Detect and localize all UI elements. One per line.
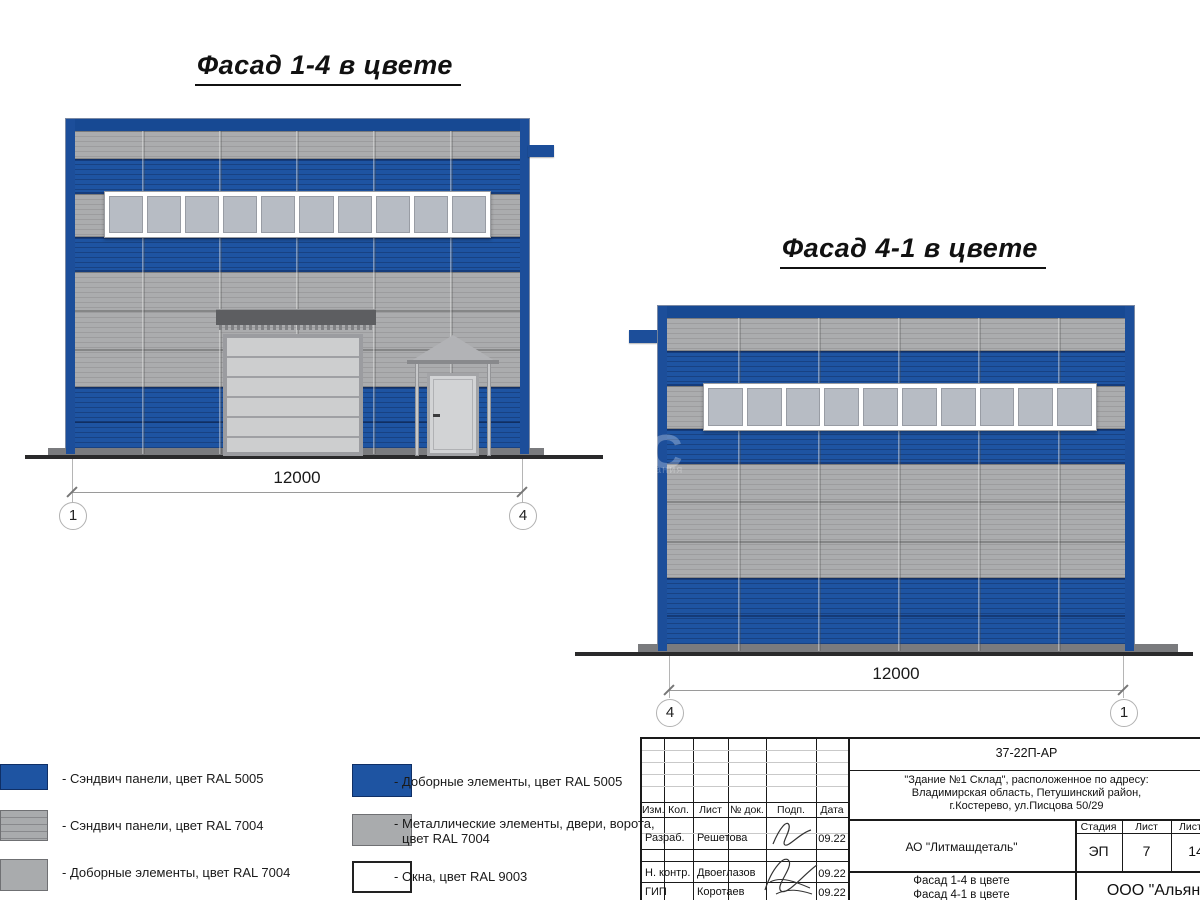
window-pane xyxy=(980,388,1015,426)
legend-label: - Окна, цвет RAL 9003 xyxy=(394,869,527,884)
canopy-post xyxy=(415,363,419,456)
sheet-value: 7 xyxy=(1122,843,1171,859)
facade-1-4-title: Фасад 1-4 в цвете xyxy=(195,50,461,86)
window-band xyxy=(104,191,491,238)
signer-name: Коротаев xyxy=(697,886,745,898)
legend-label: - Металлические элементы, двери, ворота, xyxy=(394,816,655,831)
panel-joint xyxy=(667,615,1125,617)
panel-joint xyxy=(219,131,222,454)
doc-number: 37-22П-АР xyxy=(848,746,1200,760)
window-pane xyxy=(902,388,937,426)
signature-date: 09.22 xyxy=(816,833,848,845)
facade-4-1-title: Фасад 4-1 в цвете xyxy=(780,233,1046,269)
facade-frame-right xyxy=(1125,306,1134,651)
window-pane xyxy=(299,196,333,233)
facade-frame-right xyxy=(520,119,529,454)
sheet-title: Фасад 1-4 в цвете xyxy=(848,875,1075,887)
panel-joint xyxy=(898,318,901,651)
window-pane xyxy=(338,196,372,233)
sheet-label: Лист xyxy=(1122,821,1171,833)
legend-swatch-gray-striped-panel xyxy=(0,810,48,841)
legend-label: - Сэндвич панели, цвет RAL 5005 xyxy=(62,771,264,786)
signer-role: Разраб. xyxy=(645,832,685,844)
panel-band-cap xyxy=(66,119,529,131)
address-line: Владимирская область, Петушинский район, xyxy=(848,787,1200,799)
window-pane xyxy=(376,196,410,233)
title-block-line xyxy=(642,817,848,818)
panel-band-blue xyxy=(658,351,1134,386)
extension-line xyxy=(1123,656,1124,698)
legend-label: - Сэндвич панели, цвет RAL 7004 xyxy=(62,818,264,833)
legend-swatch-blue-panel xyxy=(0,764,48,790)
window-pane xyxy=(747,388,782,426)
stage-label: Стадия xyxy=(1075,821,1122,833)
title-block-line xyxy=(848,871,1200,873)
sheets-value: 14 xyxy=(1171,843,1200,859)
window-pane xyxy=(863,388,898,426)
window-pane xyxy=(147,196,181,233)
panel-band-gray xyxy=(658,464,1134,578)
gate-canopy-teeth xyxy=(219,325,373,330)
window-pane xyxy=(941,388,976,426)
signature xyxy=(770,819,814,847)
stage-value: ЭП xyxy=(1075,843,1122,859)
window-pane xyxy=(1018,388,1053,426)
dimension-line xyxy=(72,492,522,493)
panel-joint xyxy=(1058,318,1061,651)
customer: АО "Литмашдеталь" xyxy=(848,840,1075,854)
company: ООО "Альянс xyxy=(1075,882,1200,900)
panel-joint xyxy=(738,318,741,651)
address-line: г.Костерево, ул.Писцова 50/29 xyxy=(848,800,1200,812)
col-header-kol: Кол. xyxy=(664,804,693,816)
panel-joint xyxy=(667,501,1125,503)
facade-4-1-drawing xyxy=(657,305,1135,652)
axis-marker: 4 xyxy=(509,502,537,530)
legend-label: - Доборные элементы, цвет RAL 5005 xyxy=(394,774,622,789)
entrance-door xyxy=(427,373,479,456)
signer-role: Н. контр. xyxy=(645,867,690,879)
legend-label: цвет RAL 7004 xyxy=(402,831,490,846)
title-block-line xyxy=(640,737,1200,739)
col-header-podp: Подп. xyxy=(766,804,816,816)
facade-frame-left xyxy=(66,119,75,454)
panel-joint xyxy=(667,541,1125,543)
window-pane xyxy=(786,388,821,426)
title-block-line xyxy=(642,750,848,751)
canopy-post xyxy=(487,363,491,456)
axis-marker: 1 xyxy=(59,502,87,530)
axis-marker: 4 xyxy=(656,699,684,727)
axis-marker: 1 xyxy=(1110,699,1138,727)
signer-role: ГИП xyxy=(645,886,667,898)
dimension-value: 12000 xyxy=(72,468,522,488)
door-canopy-fascia xyxy=(407,360,499,364)
window-pane xyxy=(1057,388,1092,426)
panel-band-blue xyxy=(658,429,1134,464)
title-block-line xyxy=(848,770,1200,771)
dimension-value: 12000 xyxy=(669,664,1123,684)
col-header-doc: № док. xyxy=(728,804,766,816)
panel-joint xyxy=(373,131,376,454)
window-band xyxy=(703,383,1097,431)
window-pane xyxy=(824,388,859,426)
title-block-line xyxy=(642,774,848,775)
window-pane xyxy=(452,196,486,233)
sheet-title: Фасад 4-1 в цвете xyxy=(848,889,1075,900)
drawing-sheet: Фасад 1-4 в цвете Фасад 4-1 в цвете xyxy=(0,0,1200,900)
title-block-line xyxy=(642,786,848,787)
title-block-line xyxy=(642,802,848,803)
dimension-line xyxy=(669,690,1123,691)
panel-joint xyxy=(142,131,145,454)
door-handle xyxy=(433,414,440,417)
window-pane xyxy=(223,196,257,233)
panel-joint xyxy=(818,318,821,651)
window-pane xyxy=(185,196,219,233)
title-block-line xyxy=(1075,833,1200,834)
signature xyxy=(760,850,822,898)
facade-1-4-drawing xyxy=(65,118,530,455)
panel-joint xyxy=(978,318,981,651)
col-header-data: Дата xyxy=(816,804,848,816)
signer-name: Решетова xyxy=(697,832,747,844)
roof-projection xyxy=(528,145,554,157)
sheets-label: Листов xyxy=(1171,821,1200,833)
window-pane xyxy=(109,196,143,233)
door-canopy xyxy=(411,335,495,361)
sectional-gate xyxy=(223,334,363,456)
title-block-line xyxy=(642,762,848,763)
window-pane xyxy=(414,196,448,233)
roof-projection xyxy=(629,330,657,343)
legend-swatch-gray-panel xyxy=(0,859,48,891)
gate-canopy xyxy=(216,309,376,325)
extension-line xyxy=(522,459,523,503)
window-pane xyxy=(708,388,743,426)
address-line: "Здание №1 Склад", расположенное по адре… xyxy=(848,774,1200,786)
window-pane xyxy=(261,196,295,233)
watermark: ания xyxy=(655,464,683,476)
signer-name: Двоеглазов xyxy=(697,867,755,879)
panel-band-cap xyxy=(658,306,1134,318)
foundation xyxy=(638,644,1178,652)
panel-band-gray xyxy=(658,318,1134,351)
ground-line xyxy=(575,652,1193,656)
col-header-izm: Изм. xyxy=(642,804,664,816)
col-header-list: Лист xyxy=(693,804,728,816)
legend-label: - Доборные элементы, цвет RAL 7004 xyxy=(62,865,290,880)
